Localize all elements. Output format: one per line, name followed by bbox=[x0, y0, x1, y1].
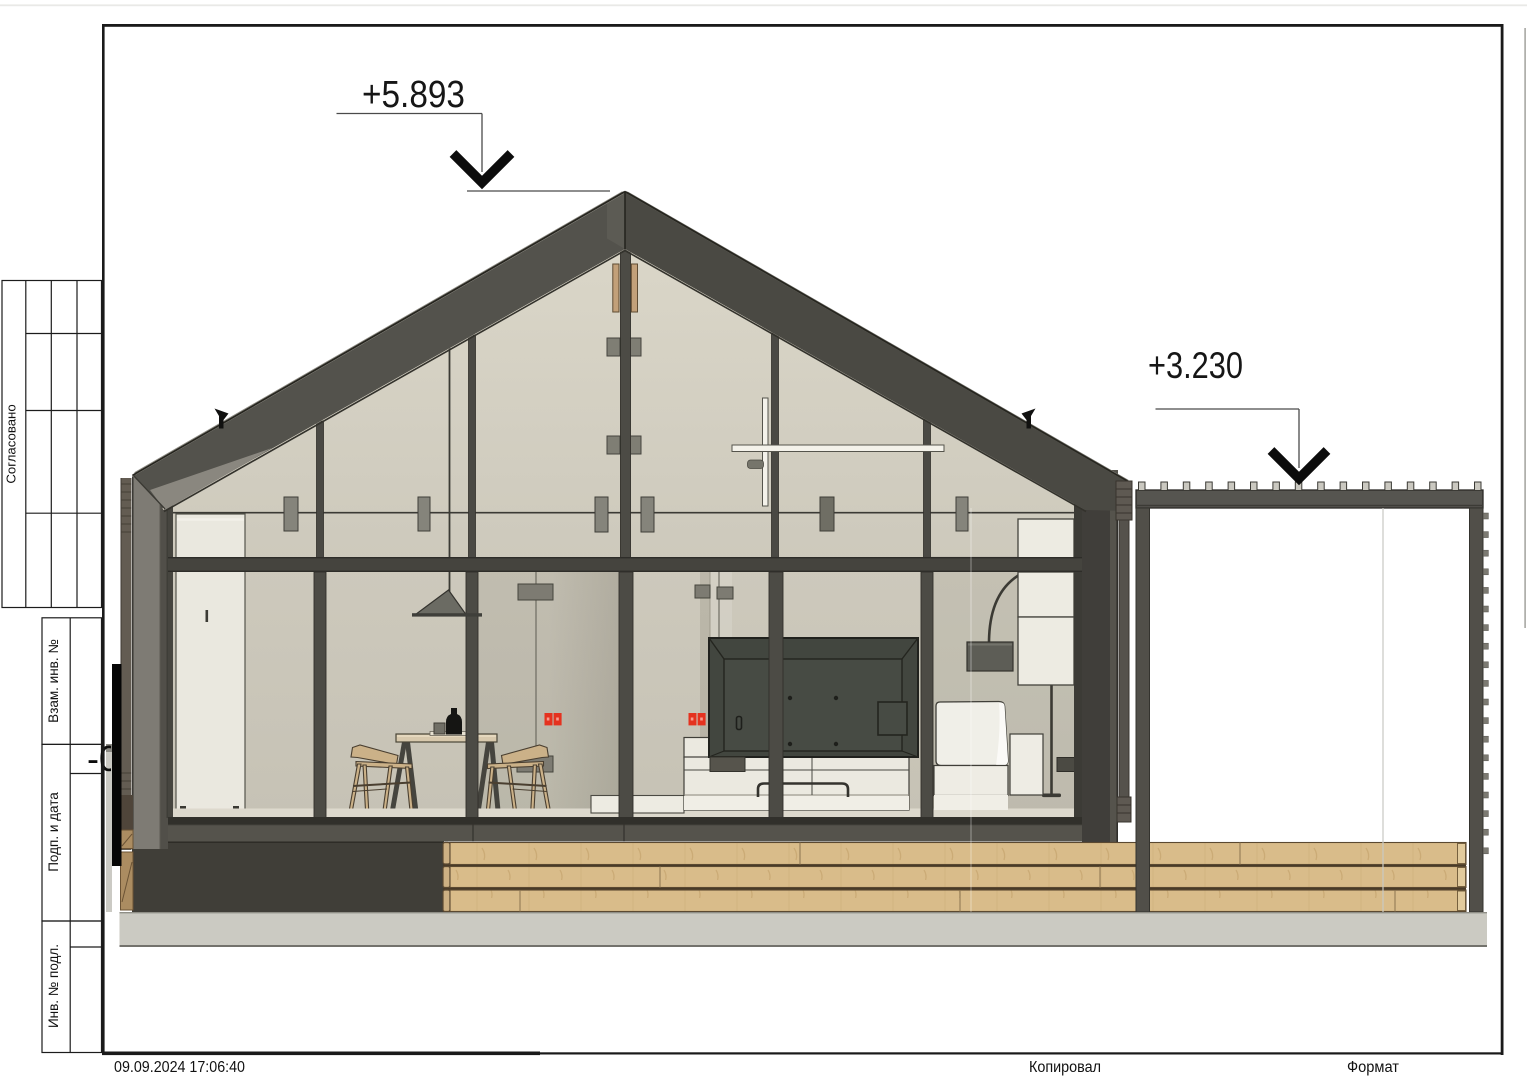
svg-text:+5.893: +5.893 bbox=[362, 74, 465, 116]
svg-text:Формат: Формат bbox=[1347, 1059, 1399, 1076]
svg-text:09.09.2024 17:06:40: 09.09.2024 17:06:40 bbox=[114, 1059, 245, 1076]
svg-text:Согласовано: Согласовано bbox=[4, 404, 19, 483]
svg-text:Взам. инв. №: Взам. инв. № bbox=[46, 639, 61, 723]
svg-text:Подп. и дата: Подп. и дата bbox=[46, 792, 61, 872]
svg-text:Инв. № подл.: Инв. № подл. bbox=[46, 944, 61, 1028]
svg-text:+3.230: +3.230 bbox=[1148, 345, 1243, 386]
svg-text:Копировал: Копировал bbox=[1029, 1059, 1101, 1076]
